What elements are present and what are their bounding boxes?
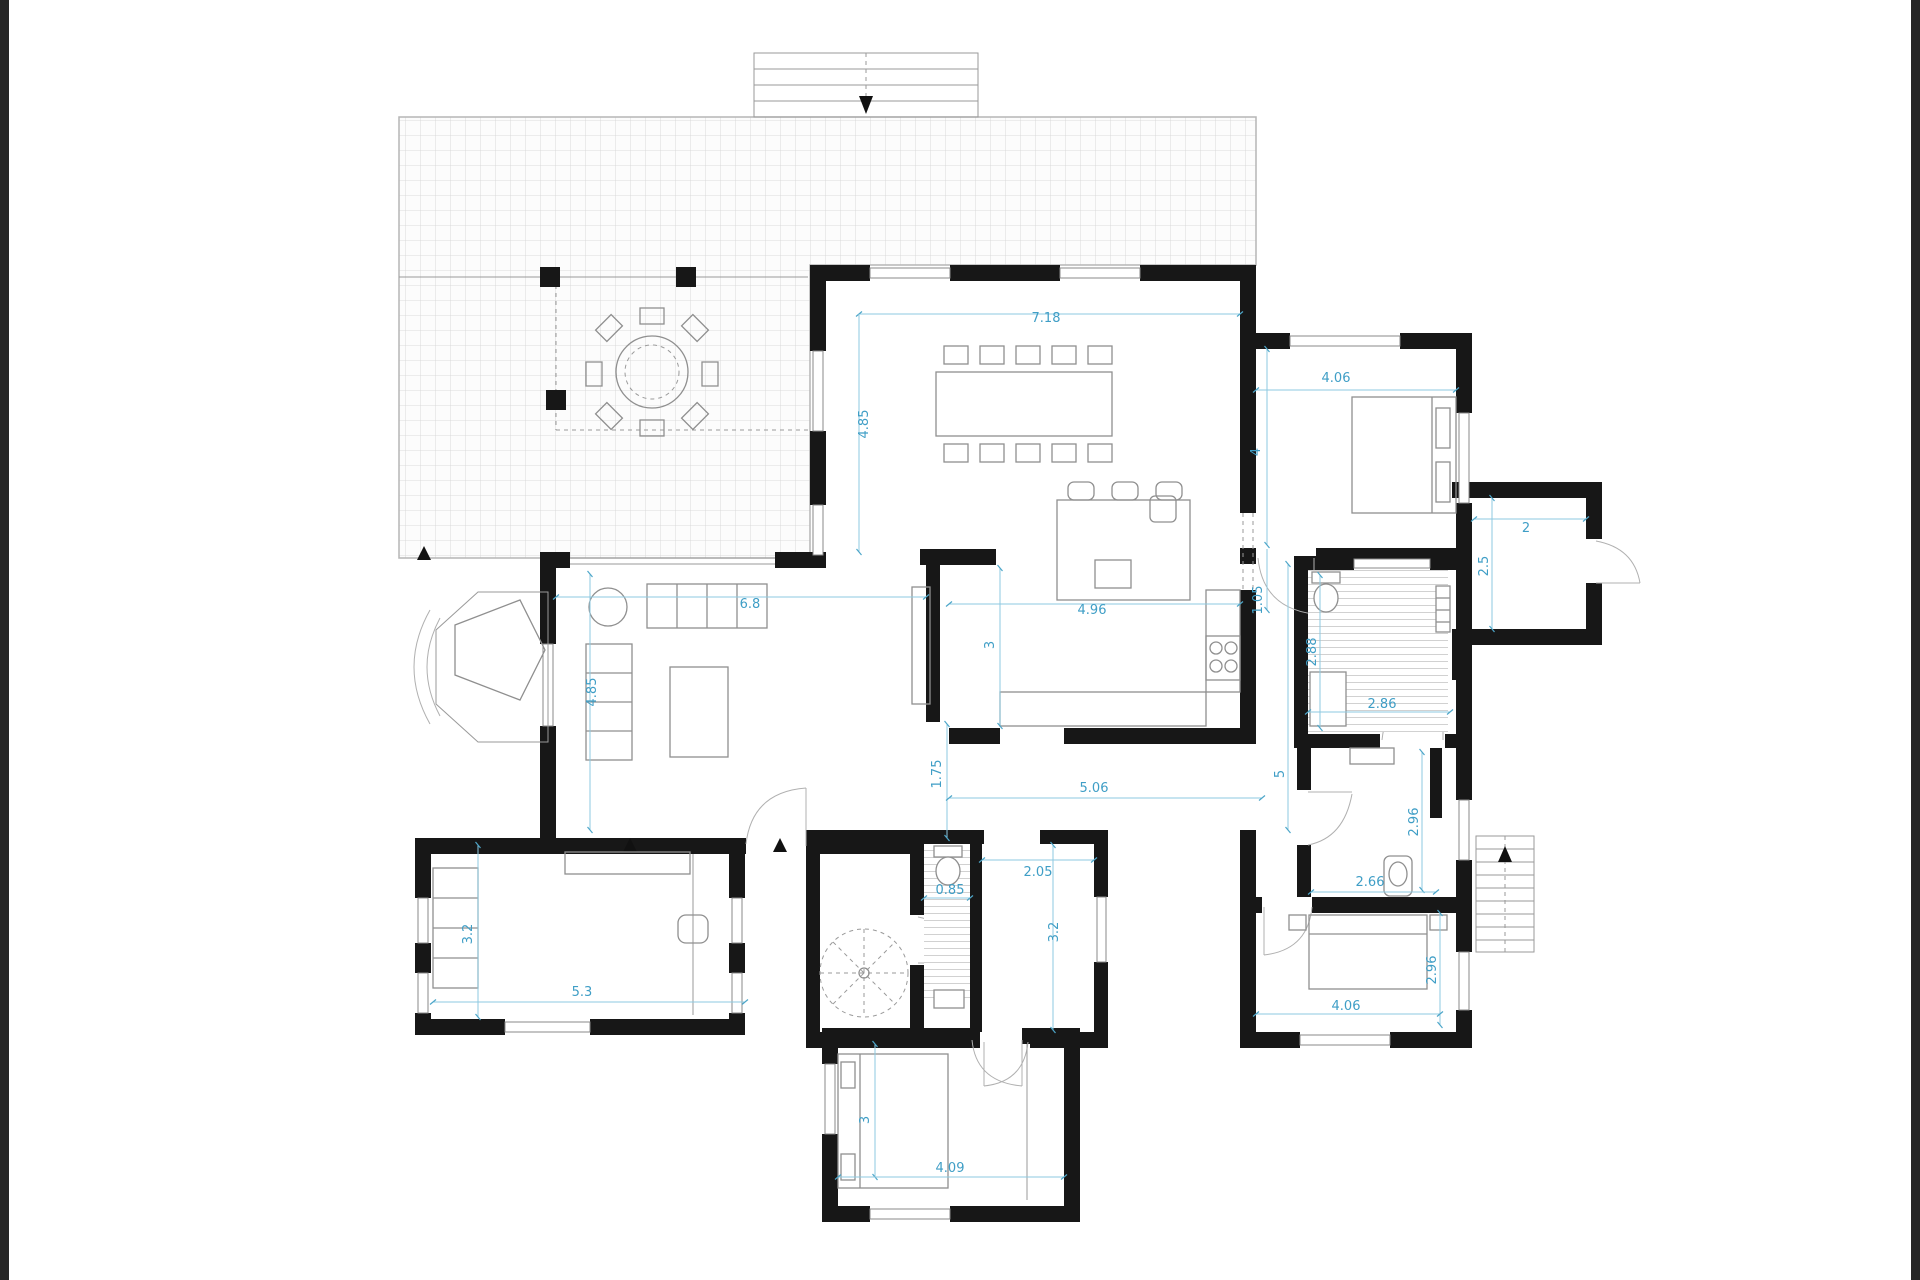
radiator-icon [1436,586,1450,632]
toilet-icon [934,846,962,885]
dim-kitchen-depth: 3 [983,641,998,649]
kitchen-island [1057,482,1190,600]
dresser [1350,748,1394,764]
doors [746,513,1640,1086]
bedroom-bottom-right [1289,915,1447,989]
wc-room [924,844,970,1008]
dim-office-width: 5.3 [572,985,593,1000]
entry-arrow [773,838,787,852]
dim-laundry-depth: 2.96 [1407,808,1422,837]
stove-icon [1206,636,1240,680]
dim-kitchen-span: 5.06 [1080,781,1109,796]
bedroom-top-right [1352,397,1456,513]
bed [838,1054,948,1188]
dim-office-depth: 3.2 [461,924,476,945]
dim-bedroom-bottom-width: 4.09 [936,1161,965,1176]
laundry-room [1350,748,1412,896]
shower-tray [1310,672,1346,726]
pergola-column [540,267,560,287]
dim-kitchen-width: 4.96 [1078,603,1107,618]
dim-living-depth: 4.85 [585,678,600,707]
dim-dining-depth: 4.85 [857,410,872,439]
dim-bathroom-width: 2.86 [1368,697,1397,712]
entry-stairs-right [1476,836,1534,952]
floor-plan-page: 7.18 4.85 4.06 4 1.05 2 2.5 2.88 2.86 2.… [0,0,1920,1280]
dim-hall-width: 2.05 [1024,865,1053,880]
dim-corridor-length: 5 [1273,770,1288,778]
dim-kitchen-passage: 1.75 [930,760,945,789]
right-edge-bar [1911,0,1920,1280]
bay-seat [455,600,545,700]
wc-sink [934,990,964,1008]
bed [1289,915,1447,989]
living-terrace-door [746,788,806,846]
dim-corridor-door: 1.05 [1251,586,1266,615]
bar-stool [1068,482,1094,500]
dining-table [936,346,1112,462]
washbasin-icon [1384,856,1412,896]
dim-bedroom-bottom-depth: 3 [858,1116,873,1124]
kitchen-counter-side [1206,590,1240,692]
office-shelf [565,852,690,874]
dim-bedroom-bottom-right-width: 4.06 [1332,999,1361,1014]
bar-stool [1112,482,1138,500]
terrace-tiled-floor [399,117,1256,558]
dim-bedroom-top-right-width: 4.06 [1322,371,1351,386]
bedroom-bottom-right-door [1264,907,1312,955]
laundry-door [1308,792,1352,845]
dining-room [936,346,1176,522]
round-side-table [589,588,627,626]
dim-living-width: 6.8 [740,597,761,612]
terrace [399,117,1256,560]
dim-laundry-width: 2.66 [1356,875,1385,890]
bed [1352,397,1456,513]
stairs-direction-arrow [1498,846,1512,862]
dim-vestibule-depth: 2.5 [1477,556,1492,577]
floor-plan-drawing: 7.18 4.85 4.06 4 1.05 2 2.5 2.88 2.86 2.… [0,0,1920,1280]
bay-window [414,592,548,742]
dim-bathroom-depth: 2.88 [1305,638,1320,667]
dim-wc-width: 0.85 [936,883,965,898]
stairs-direction-arrow [859,96,873,114]
kitchen-counter [1000,692,1206,726]
dim-bedroom-bottom-right-depth: 2.96 [1425,956,1440,985]
bar-stool [1156,482,1182,500]
pergola-column [676,267,696,287]
entry-stairs-top [754,53,978,117]
hall-exit-door [984,1042,1028,1086]
dim-vestibule-width: 2 [1522,521,1530,536]
vestibule-entry-door [1596,541,1640,583]
spiral-staircase [820,929,908,1017]
left-edge-bar [0,0,9,1280]
dim-corridor-bedroom-depth: 4 [1249,448,1264,456]
toilet-icon [1312,572,1340,612]
dim-dining-width: 7.18 [1032,311,1061,326]
dim-hall-depth: 3.2 [1047,922,1062,943]
pergola-column [546,390,566,410]
coffee-table [670,667,728,757]
